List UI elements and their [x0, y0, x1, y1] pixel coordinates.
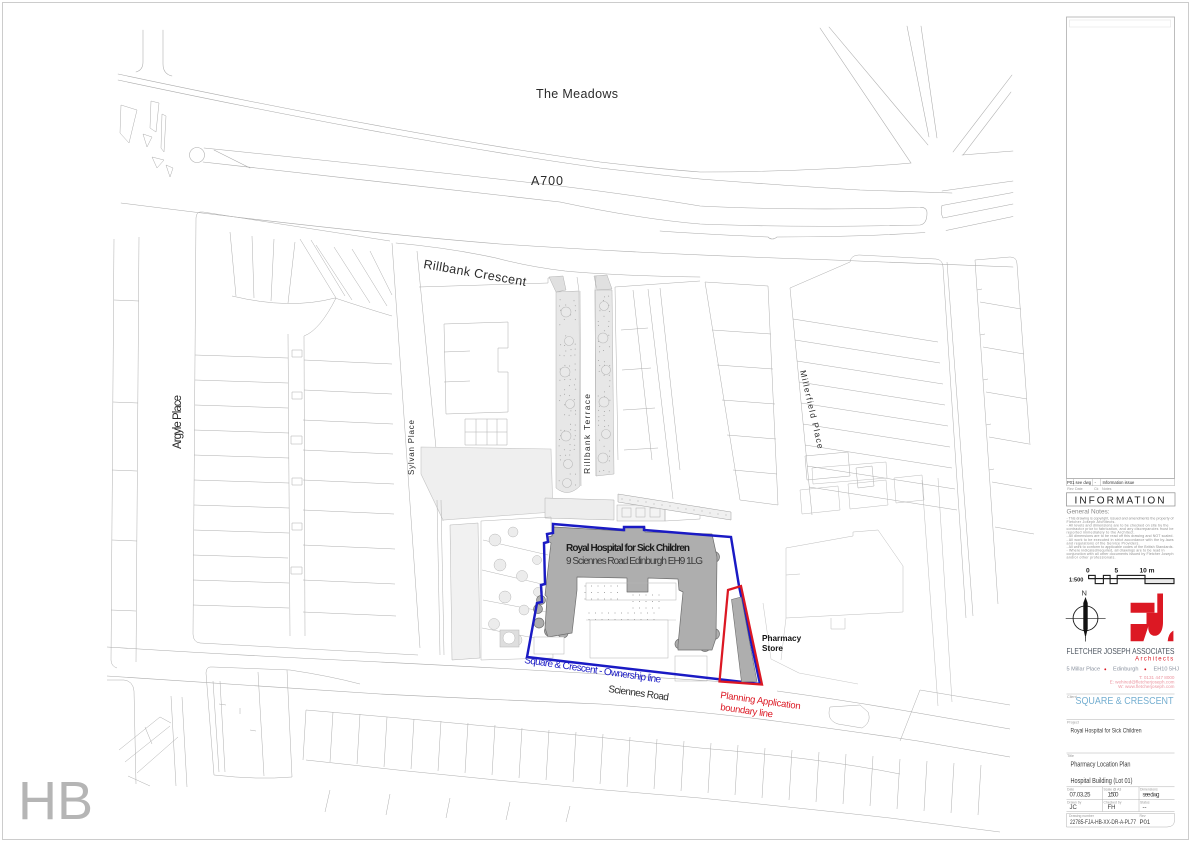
svg-text:Rev: Rev	[1140, 814, 1146, 818]
svg-text:W: www.fletcherjoseph.com: W: www.fletcherjoseph.com	[1118, 684, 1175, 689]
svg-text:Checked by: Checked by	[1104, 800, 1122, 804]
svg-text:HB: HB	[18, 771, 93, 831]
svg-text:●: ●	[1104, 667, 1107, 672]
svg-text:1:500: 1:500	[1108, 793, 1120, 799]
svg-text:Millerfield Place: Millerfield Place	[798, 369, 826, 449]
svg-text:07.03.25: 07.03.25	[1070, 793, 1092, 799]
svg-text:Drawing number: Drawing number	[1069, 814, 1095, 818]
svg-text:Sciennes Road: Sciennes Road	[608, 684, 670, 703]
svg-text:SQUARE & CRESCENT: SQUARE & CRESCENT	[1076, 696, 1175, 707]
svg-text:0: 0	[1086, 568, 1090, 575]
svg-text:see dwg: see dwg	[1143, 793, 1160, 799]
svg-text:Status: Status	[1140, 800, 1150, 804]
svg-text:Edinburgh: Edinburgh	[1113, 667, 1139, 673]
svg-text:see dwg: see dwg	[1076, 480, 1092, 485]
svg-text:9 Sciennes Road Edinburgh EH9: 9 Sciennes Road Edinburgh EH9 1LG	[566, 556, 703, 567]
svg-text:INFORMATION: INFORMATION	[1075, 495, 1167, 506]
svg-text:Drawn by: Drawn by	[1067, 800, 1082, 804]
svg-text:Store: Store	[762, 644, 783, 653]
svg-text:●: ●	[1144, 667, 1147, 672]
svg-text:Sylvan Place: Sylvan Place	[407, 419, 416, 475]
svg-text:Rillbank Terrace: Rillbank Terrace	[582, 394, 592, 474]
svg-text:1:500: 1:500	[1069, 577, 1083, 583]
svg-text:General Notes:: General Notes:	[1067, 509, 1110, 516]
svg-text:10 m: 10 m	[1140, 568, 1155, 575]
svg-text:22785-FJA-HB-XX-DR-A-PL77: 22785-FJA-HB-XX-DR-A-PL77	[1070, 820, 1137, 826]
svg-text:Date: Date	[1075, 487, 1083, 491]
svg-text:P01: P01	[1140, 820, 1151, 826]
svg-text:Hospital Building (Lot 01): Hospital Building (Lot 01)	[1071, 778, 1133, 785]
svg-text:Project: Project	[1067, 721, 1080, 725]
svg-text:5 Millar Place: 5 Millar Place	[1067, 667, 1101, 673]
svg-text:Information issue: Information issue	[1103, 480, 1136, 485]
svg-text:Argyle Place: Argyle Place	[172, 395, 184, 449]
svg-text:FLETCHER JOSEPH ASSOCIATES: FLETCHER JOSEPH ASSOCIATES	[1067, 647, 1175, 656]
svg-text:Date: Date	[1067, 788, 1074, 792]
svg-text:P01: P01	[1067, 480, 1075, 485]
svg-text:N: N	[1082, 589, 1087, 598]
svg-text:Dimensions: Dimensions	[1140, 788, 1158, 792]
svg-text:FH: FH	[1108, 805, 1116, 811]
svg-text:--: --	[1143, 805, 1147, 811]
svg-text:Rev: Rev	[1067, 487, 1074, 491]
svg-text:Royal Hospital for Sick Childr: Royal Hospital for Sick Children	[1071, 728, 1142, 735]
svg-text:EH10 5HJ: EH10 5HJ	[1154, 667, 1180, 673]
svg-text:Notes: Notes	[1102, 487, 1112, 491]
svg-text:and/or other professionals.: and/or other professionals.	[1067, 556, 1116, 560]
svg-text:Pharmacy: Pharmacy	[762, 634, 802, 643]
svg-text:A700: A700	[531, 174, 563, 188]
svg-text:Royal Hospital for Sick Childr: Royal Hospital for Sick Children	[566, 543, 690, 554]
svg-text:Title: Title	[1067, 754, 1074, 758]
svg-text:Ck: Ck	[1094, 487, 1099, 491]
svg-text:Architects: Architects	[1135, 657, 1174, 663]
svg-text:5: 5	[1115, 568, 1119, 575]
svg-text:JC: JC	[1070, 805, 1078, 811]
svg-text:The Meadows: The Meadows	[536, 87, 618, 101]
svg-text:Pharmacy Location Plan: Pharmacy Location Plan	[1071, 762, 1131, 769]
svg-text:-: -	[1095, 480, 1097, 485]
svg-text:Scale @ A3: Scale @ A3	[1104, 788, 1122, 792]
